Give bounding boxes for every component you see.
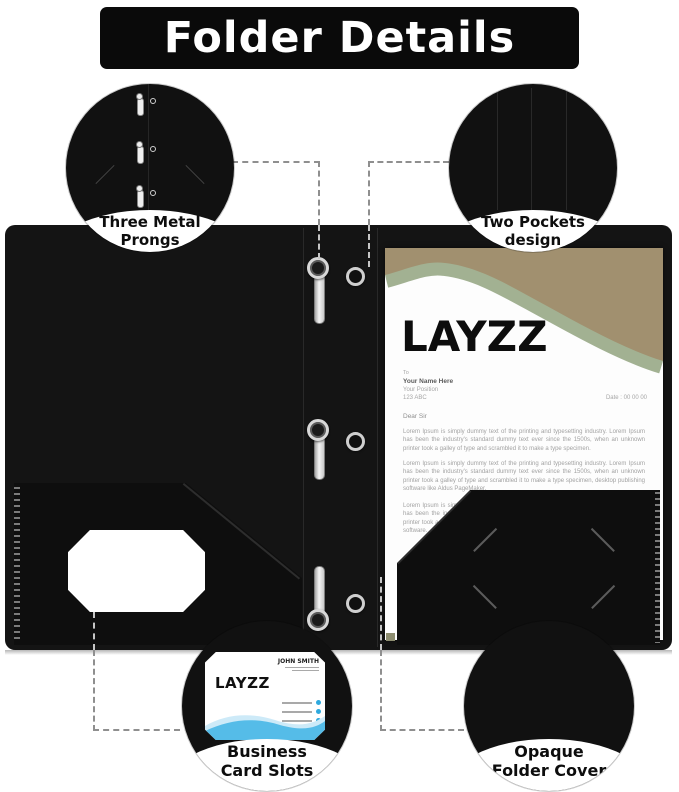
- callout-label-line1: Three Metal: [66, 213, 234, 231]
- mini-slit-left: [95, 165, 114, 184]
- business-card-subtitle-bar: [285, 667, 319, 669]
- letter-paragraph-2: Lorem Ipsum is simply dummy text of the …: [403, 460, 645, 494]
- callout-three-metal-prongs: Three Metal Prongs: [66, 84, 234, 252]
- business-card: LAYZZ JOHN SMITH: [205, 652, 325, 740]
- connector-cover-vertical-on-folder: [380, 577, 382, 650]
- mini-eyelet-2: [150, 146, 156, 152]
- callout-business-card-slots: LAYZZ JOHN SMITH Business Card Slots: [182, 621, 352, 791]
- business-card-name: JOHN SMITH: [278, 658, 319, 665]
- letter-paragraph-1: Lorem Ipsum is simply dummy text of the …: [403, 428, 645, 453]
- callout-label-line1: Business: [182, 742, 352, 761]
- letter-recipient-position: Your Position: [403, 387, 438, 393]
- prong-grommet-2: [307, 419, 329, 441]
- product-infographic: Folder Details LAYZZ To Your Name Here Y…: [0, 0, 679, 792]
- eyelet-ring-2: [346, 432, 365, 451]
- letter-recipient-name: Your Name Here: [403, 378, 453, 385]
- connector-cardslot-vertical: [93, 650, 95, 731]
- card-slit-bottom-right: [591, 585, 615, 609]
- paper-edge-tip: [386, 633, 395, 641]
- card-slit-top-right: [591, 528, 615, 552]
- business-card-logo: LAYZZ: [215, 674, 270, 692]
- mini-prong-head-2: [136, 141, 143, 148]
- callout-label-line1: Opaque: [464, 742, 634, 761]
- mini-eyelet-1: [150, 98, 156, 104]
- mini-slit-right: [185, 165, 204, 184]
- connector-cardslot-vertical-on-folder: [93, 612, 95, 650]
- callout-label-line2: Card Slots: [182, 761, 352, 780]
- spine-crease-right: [377, 228, 378, 647]
- callout-label-line2: Folder Cover: [464, 761, 634, 780]
- prong-grommet-1: [307, 257, 329, 279]
- business-card-subtitle-bar: [292, 670, 319, 672]
- mini-prong-strip-1: [137, 98, 144, 116]
- card-wave-graphic: [205, 704, 325, 740]
- left-pocket-stitching: [14, 487, 20, 641]
- mini-prong-head-1: [136, 93, 143, 100]
- eyelet-ring-3: [346, 594, 365, 613]
- card-slit-top-left: [473, 528, 497, 552]
- mini-prong-head-3: [136, 185, 143, 192]
- page-title: Folder Details: [164, 13, 516, 63]
- eyelet-ring-1: [346, 267, 365, 286]
- connector-prongs-vertical: [318, 161, 320, 225]
- card-slit-bottom-left: [473, 585, 497, 609]
- callout-label-line2: design: [449, 231, 617, 249]
- business-card-window: [68, 530, 205, 612]
- callout-two-pockets: Two Pockets design: [449, 84, 617, 252]
- mini-eyelet-3: [150, 190, 156, 196]
- connector-cover-vertical: [380, 650, 382, 731]
- callout-label-line2: Prongs: [66, 231, 234, 249]
- pocket-crease-3: [566, 88, 567, 210]
- connector-pockets-vertical: [368, 161, 370, 225]
- letter-to-label: To: [403, 370, 409, 376]
- pocket-crease-1: [497, 88, 498, 210]
- callout-label-line1: Two Pockets: [449, 213, 617, 231]
- letterhead-logo: LAYZZ: [401, 316, 548, 358]
- letter-date: Date : 00 00 00: [606, 395, 647, 401]
- connector-prongs-horizontal: [232, 161, 320, 163]
- pocket-crease-2: [531, 88, 532, 210]
- mini-prong-strip-2: [137, 146, 144, 164]
- spine-crease-left: [303, 228, 304, 647]
- connector-pockets-vertical-on-folder: [368, 225, 370, 267]
- connector-cover-horizontal: [380, 729, 464, 731]
- callout-spine-crease: [148, 84, 149, 214]
- connector-pockets-horizontal: [368, 161, 449, 163]
- connector-cardslot-horizontal: [93, 729, 180, 731]
- callout-opaque-folder-cover: Opaque Folder Cover: [464, 621, 634, 791]
- letter-salutation: Dear Sir: [403, 413, 427, 420]
- mini-prong-strip-3: [137, 190, 144, 208]
- letter-recipient-address: 123 ABC: [403, 395, 427, 401]
- title-banner: Folder Details: [100, 7, 579, 69]
- prong-grommet-3: [307, 609, 329, 631]
- connector-prongs-vertical-on-folder: [318, 225, 320, 259]
